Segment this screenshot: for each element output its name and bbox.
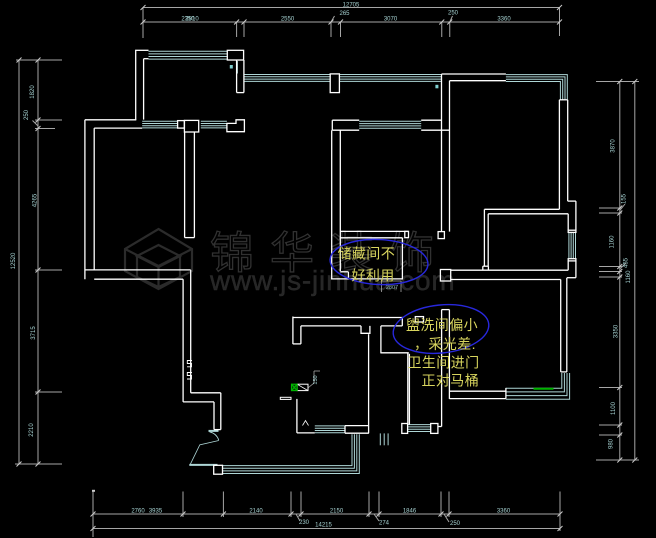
svg-text:12520: 12520 [11, 252, 17, 269]
svg-text:455: 455 [624, 257, 630, 268]
svg-text:2150: 2150 [330, 509, 344, 515]
svg-text:2550: 2550 [281, 17, 295, 23]
svg-text:2807: 2807 [386, 285, 398, 291]
svg-text:4265: 4265 [33, 193, 39, 207]
svg-text:3360: 3360 [497, 509, 511, 515]
svg-text:3360: 3360 [497, 17, 511, 23]
svg-text:12705: 12705 [343, 3, 360, 9]
svg-text:盥洗间偏小: 盥洗间偏小 [406, 317, 478, 333]
svg-text:3715: 3715 [31, 326, 37, 340]
svg-text:好利用: 好利用 [352, 268, 395, 284]
svg-text:1160: 1160 [626, 270, 632, 284]
svg-text:3935: 3935 [149, 509, 163, 515]
svg-text:155: 155 [622, 193, 628, 204]
svg-text:14215: 14215 [315, 523, 332, 529]
svg-text:2760: 2760 [131, 509, 145, 515]
svg-text:2210: 2210 [29, 423, 35, 437]
svg-text:，采光差.: ，采光差. [414, 336, 476, 352]
svg-text:正对马桶: 正对马桶 [422, 373, 480, 389]
svg-text:1820: 1820 [30, 85, 36, 99]
svg-text:250: 250 [450, 521, 461, 527]
svg-text:储藏间不: 储藏间不 [338, 246, 396, 262]
svg-text:3870: 3870 [611, 139, 617, 153]
svg-text:2810: 2810 [185, 17, 199, 23]
svg-text:1160: 1160 [610, 235, 616, 249]
svg-text:250: 250 [448, 11, 459, 17]
svg-text:卫生间进门: 卫生间进门 [408, 355, 480, 371]
svg-text:230: 230 [299, 520, 310, 526]
svg-text:3070: 3070 [384, 17, 398, 23]
svg-text:250: 250 [24, 109, 30, 120]
svg-text:3350: 3350 [614, 324, 620, 338]
svg-text:274: 274 [379, 521, 390, 527]
svg-text:2140: 2140 [249, 509, 263, 515]
svg-text:1100: 1100 [611, 401, 617, 415]
svg-text:150: 150 [313, 375, 319, 384]
svg-text:1846: 1846 [403, 509, 417, 515]
svg-text:265: 265 [339, 11, 350, 17]
svg-text:980: 980 [609, 438, 615, 449]
